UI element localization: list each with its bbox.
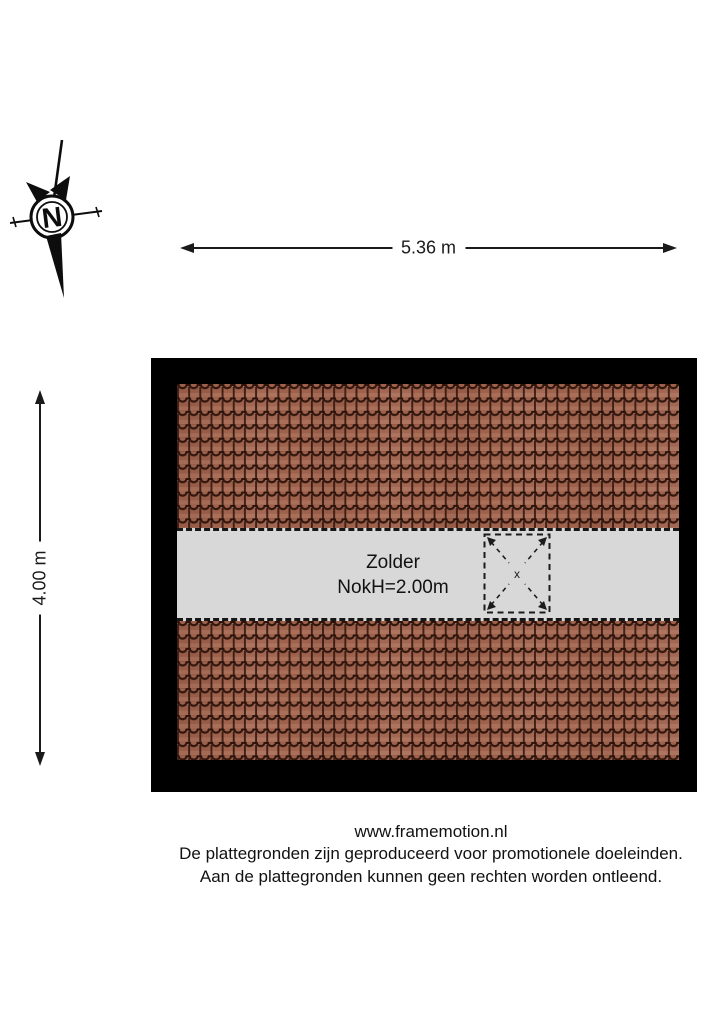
skylight-arrowhead-br xyxy=(538,601,547,610)
height-dimension: 4.00 m xyxy=(28,390,52,766)
footer-website: www.framemotion.nl xyxy=(151,821,711,843)
arrow-left-icon xyxy=(180,243,194,253)
compass-north-label: N xyxy=(40,201,64,234)
arrow-up-icon xyxy=(35,390,45,404)
footer-disclaimer-line-2: Aan de plattegronden kunnen geen rechten… xyxy=(151,866,711,888)
skylight-diagonal-br xyxy=(525,584,543,605)
footer: www.framemotion.nl De plattegronden zijn… xyxy=(151,821,711,888)
width-dimension-label: 5.36 m xyxy=(392,237,465,260)
skylight-arrowhead-tl xyxy=(487,537,496,546)
footer-disclaimer-line-1: De plattegronden zijn geproduceerd voor … xyxy=(151,843,711,865)
compass-south-needle xyxy=(46,233,64,298)
room-name: Zolder xyxy=(268,550,518,575)
skylight-symbol: x xyxy=(483,533,551,614)
arrow-down-icon xyxy=(35,752,45,766)
width-dimension: 5.36 m xyxy=(180,236,677,260)
roof-tiles-bottom xyxy=(177,621,679,760)
room-label: Zolder NokH=2.00m xyxy=(268,550,518,600)
skylight-arrowhead-tr xyxy=(538,537,547,546)
skylight-diagonal-tr xyxy=(525,542,543,563)
skylight-center-marker: x xyxy=(514,567,520,581)
floorplan-page: N 5.36 m 4.00 m Zolder NokH=2.00m xyxy=(0,0,724,1024)
skylight-diagonal-bl xyxy=(491,584,509,605)
skylight-diagonal-tl xyxy=(491,542,509,563)
arrow-right-icon xyxy=(663,243,677,253)
compass-north-arrow-icon: N xyxy=(10,126,110,304)
roof-tiles-top xyxy=(177,384,679,528)
attic-room: Zolder NokH=2.00m x xyxy=(177,528,679,621)
skylight-arrowhead-bl xyxy=(487,601,496,610)
ridge-height-label: NokH=2.00m xyxy=(268,575,518,600)
floorplan-inner: Zolder NokH=2.00m x xyxy=(177,384,679,760)
height-dimension-label: 4.00 m xyxy=(29,541,52,614)
floorplan: Zolder NokH=2.00m x xyxy=(151,358,697,792)
